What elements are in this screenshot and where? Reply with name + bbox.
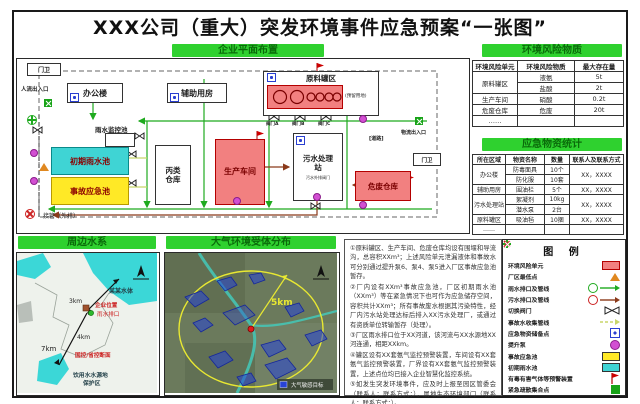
logistics-gate-label: 物流出入口 [401, 129, 426, 136]
table-row: 原料罐区 吸油毡 10捆 XX，XXXX [473, 215, 624, 225]
tag-air: 大气环境受体分布 [166, 236, 336, 249]
legend-panel: 图 例 环境风险单元 厂区最低点 雨水排口及管线 污水排口及管线 切换阀门 [502, 239, 626, 396]
table-row: 办公楼 防毒面具 10个 XX，XXXX [473, 165, 624, 175]
supplies-area: …… [473, 225, 506, 235]
risk-substance: 液氨 [518, 72, 575, 83]
supplies-contact: XX，XXXX [570, 215, 624, 225]
supplies-area: 原料罐区 [473, 215, 506, 225]
pump-icon [359, 201, 367, 209]
supplies-table: 所在区域 物资名称 数量 联系人及联系方式 办公楼 防毒面具 10个 XX，XX… [472, 154, 624, 235]
legend-item: 污水排口及管线 [503, 294, 625, 305]
lowest-point-icon [39, 163, 49, 171]
control-section-label: 国控/省控断面 [75, 351, 111, 359]
legend-item: 紧急疏散集合点 [503, 384, 625, 395]
outfall-label: 接管（外排） [43, 211, 79, 220]
risk-substance: 危废 [518, 105, 575, 116]
table-row: 危废仓库 危废 20t [473, 105, 624, 116]
air-mini-legend-label: 大气敏感目标 [291, 381, 324, 389]
table-row: 辅助用房 围油栏 5个 XX，XXXX [473, 185, 624, 195]
note-line: ④罐区设有XX套氨气监控预警装置，车间设有XX套氨气监控预警装置，厂界设有XX套… [350, 351, 496, 379]
risk-qty [575, 116, 624, 127]
water-map-panel: 某某水体 3km 企业位置 雨水排口 4km 7km 国控/省控断面 饮用水水源… [16, 252, 160, 396]
risk-unit-swatch-icon [602, 261, 620, 270]
risk-col-substance: 环境风险物质 [518, 61, 575, 72]
risk-qty: 5t [575, 72, 624, 83]
rain-monitor-pool [105, 133, 135, 147]
table-row: …… [473, 116, 624, 127]
table-row: …… [473, 225, 624, 235]
legend-item: 事故水收集管线 [503, 316, 625, 327]
legend-item: 厂区最低点 [503, 271, 625, 282]
supplies-area: 辅助用房 [473, 185, 506, 195]
emergency-plan-poster: XXX公司（重大）突发环境事件应急预案“一张图” 企业平面布置 环境风险物质 应… [0, 0, 640, 404]
tank-area-label: 原料罐区 [306, 73, 336, 84]
drinking-source-label-1: 饮用水水源地 [72, 371, 108, 379]
supplies-area: 污水处理站 [473, 195, 506, 215]
supplies-col-area: 所在区域 [473, 155, 506, 165]
risk-qty: 0.2t [575, 94, 624, 105]
supplies-qty: 10套 [545, 175, 570, 185]
reserved-land-label: (预留用地) [345, 93, 367, 99]
supplies-name: 防化服 [506, 175, 545, 185]
note-line: ③厂区雨水排口位于XX河道，该河流与XX水源地XX河连通，相距XXkm。 [350, 331, 496, 350]
factory-plan-panel: 门卫 人流出入口 办公楼 辅助用房 原料罐区 (预留用地) 阀门A 阀门B 阀门… [16, 58, 470, 234]
risk-unit: …… [473, 116, 518, 127]
gas-warning-flag-icon [610, 373, 620, 384]
supplies-qty: 10个 [545, 165, 570, 175]
legend-item: 提升泵 [503, 339, 625, 350]
road-label: [道路] [369, 135, 384, 142]
rain-outlet-icon [588, 283, 598, 293]
rain-outlet-icon [27, 115, 37, 125]
risk-substance: 盐酸 [518, 83, 575, 94]
rain-outlet-label: 雨水排口 [97, 310, 119, 318]
supplies-qty: 10捆 [545, 215, 570, 225]
legend-item: 切换阀门 [503, 305, 625, 316]
supplies-qty: 2台 [545, 205, 570, 215]
sewage-valve-label: 污水外排阀门 [306, 176, 330, 181]
supplies-name [506, 225, 545, 235]
risk-unit: 生产车间 [473, 94, 518, 105]
pump-icon [313, 193, 321, 201]
supplies-contact: XX，XXXX [570, 195, 624, 215]
distance-top-label: 3km [69, 298, 82, 305]
tank-circles-icon [268, 86, 342, 108]
company-label: 企业位置 [94, 301, 118, 309]
pump-icon [30, 177, 38, 185]
gate-house-1: 门卫 [27, 63, 61, 76]
rain-pipe-arrow-icon [600, 284, 620, 292]
supply-point-icon [170, 93, 179, 102]
notes-panel: ①原料罐区、生产车间、危废仓库均设有围堰和导流沟，总容积XXm³；上述风险单元泄… [344, 239, 502, 396]
class-c-warehouse-label: 丙类仓库 [164, 166, 182, 184]
air-map-panel: 5km [164, 252, 340, 396]
valve-c-label: 阀门C [318, 121, 330, 127]
sewage-pipe-arrow-icon [600, 296, 620, 304]
accident-pool: 事故应急池 [51, 177, 129, 205]
risk-col-max: 最大存在量 [575, 61, 624, 72]
legend-item: 有毒有害气体等预警装置 [503, 373, 625, 384]
legend-item: 应急物资储备点 [503, 328, 625, 339]
hazwaste-warehouse: 危废仓库 [355, 171, 411, 201]
water-body-label: 某某水体 [109, 287, 134, 295]
initial-rain-pool: 初期雨水池 [51, 147, 129, 175]
legend-item: 雨水排口及管线 [503, 283, 625, 294]
distance-mid-label: 4km [77, 334, 90, 341]
accident-water-line-icon [600, 318, 620, 326]
supplies-name: 防毒面具 [506, 165, 545, 175]
class-c-warehouse: 丙类仓库 [155, 145, 191, 205]
legend-item: 事故应急池 [503, 350, 625, 361]
legend-item: 初期雨水池 [503, 362, 625, 373]
supplies-qty: 5个 [545, 185, 570, 195]
assembly-point-icon [44, 99, 52, 107]
production-workshop: 生产车间 [215, 139, 265, 205]
assembly-point-icon [611, 385, 620, 394]
assembly-point-icon [415, 117, 423, 125]
table-row: 生产车间 硝酸 0.2t [473, 94, 624, 105]
note-line: ⑤如发生突发环境事件，应及时上报至园区管委会（联系人；联系方式；），属地生态环境… [350, 380, 496, 404]
supplies-qty: 10kg [545, 195, 570, 205]
supplies-col-name: 物资名称 [506, 155, 545, 165]
drinking-source-label-2: 保护区 [82, 379, 101, 387]
sewage-outlet-icon [588, 295, 598, 305]
sewage-station-label: 污水处理站 [302, 154, 334, 172]
supply-point-icon [70, 93, 79, 102]
supplies-qty [545, 225, 570, 235]
supplies-name: 吸油毡 [506, 215, 545, 225]
water-map: 某某水体 3km 企业位置 雨水排口 4km 7km 国控/省控断面 饮用水水源… [17, 253, 157, 393]
risk-qty: 2t [575, 83, 624, 94]
supplies-col-contact: 联系人及联系方式 [570, 155, 624, 165]
risk-substance: 硝酸 [518, 94, 575, 105]
legend-title: 图 例 [503, 243, 625, 258]
supplies-name: 围油栏 [506, 185, 545, 195]
air-map-mini-legend: 大气敏感目标 [277, 379, 333, 390]
tag-supplies: 应急物资统计 [482, 138, 622, 151]
risk-substance [518, 116, 575, 127]
note-line: ①原料罐区、生产车间、危废仓库均设有围堰和导流沟，总容积XXm³；上述风险单元泄… [350, 244, 496, 282]
supply-point-icon [296, 136, 305, 145]
rain-outlet-marker-icon [88, 310, 93, 315]
gate-house-2: 门卫 [413, 153, 441, 166]
people-gate-label: 人流出入口 [21, 85, 49, 93]
valve-a-label: 阀门A [266, 121, 278, 127]
supplies-contact: XX，XXXX [570, 165, 624, 185]
valve-b-label: 阀门B [292, 121, 304, 127]
risk-qty: 20t [575, 105, 624, 116]
supplies-col-qty: 数量 [545, 155, 570, 165]
initial-rain-pool-swatch-icon [602, 363, 620, 372]
pump-icon [359, 115, 367, 123]
risk-table: 环境风险单元 环境风险物质 最大存在量 原料罐区 液氨 5t 盐酸 2t 生产车… [472, 60, 624, 127]
pump-icon [610, 340, 620, 350]
risk-unit: 危废仓库 [473, 105, 518, 116]
distance-left-label: 7km [41, 345, 57, 353]
air-map: 5km [165, 253, 337, 393]
tag-water: 周边水系 [18, 236, 156, 249]
company-marker-icon [83, 305, 89, 311]
risk-col-unit: 环境风险单元 [473, 61, 518, 72]
risk-unit: 原料罐区 [473, 72, 518, 94]
supplies-contact [570, 225, 624, 235]
workshop-label: 生产车间 [222, 167, 258, 177]
supplies-name: 潜水泵 [506, 205, 545, 215]
tag-risk: 环境风险物质 [482, 44, 622, 57]
supplies-name: 絮凝剂 [506, 195, 545, 205]
sewage-outlet-icon [25, 209, 35, 219]
supply-point-icon [267, 73, 276, 82]
poster-title: XXX公司（重大）突发环境事件应急预案“一张图” [14, 13, 626, 40]
table-row: 污水处理站 絮凝剂 10kg XX，XXXX [473, 195, 624, 205]
risk-table-panel: 环境风险单元 环境风险物质 最大存在量 原料罐区 液氨 5t 盐酸 2t 生产车… [472, 60, 624, 122]
pump-icon [233, 197, 241, 205]
supplies-area: 办公楼 [473, 165, 506, 185]
supplies-table-panel: 所在区域 物资名称 数量 联系人及联系方式 办公楼 防毒面具 10个 XX，XX… [472, 154, 624, 232]
table-row: 原料罐区 液氨 5t [473, 72, 624, 83]
pump-icon [30, 149, 38, 157]
lowest-point-icon [610, 273, 620, 281]
tag-plan: 企业平面布置 [172, 44, 324, 57]
legend-item: 环境风险单元 [503, 260, 625, 271]
accident-pool-swatch-icon [602, 352, 620, 361]
supply-point-icon [610, 328, 620, 338]
supplies-contact: XX，XXXX [570, 185, 624, 195]
tank-strip [267, 85, 343, 109]
company-center-marker-icon [248, 326, 254, 332]
note-line: ②厂内设有XXm³事故应急池，厂区初期雨水池（XXm³）等在紧急情况下也可作为应… [350, 283, 496, 330]
valve-icon [604, 306, 620, 315]
